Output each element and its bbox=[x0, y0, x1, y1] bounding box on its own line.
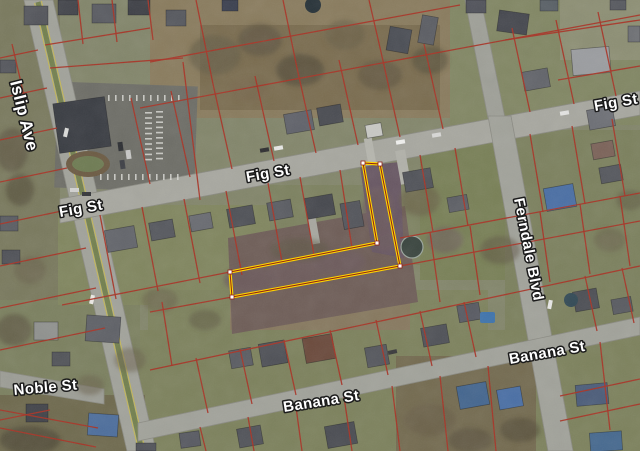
parcel-vertex-handle[interactable] bbox=[228, 270, 232, 274]
map-viewport[interactable]: Islip AveFig StFig StFig StFerndale Blvd… bbox=[0, 0, 640, 451]
aerial-parcel-map[interactable]: Islip AveFig StFig StFig StFerndale Blvd… bbox=[0, 0, 640, 451]
photo-grain bbox=[0, 0, 640, 451]
parcel-vertex-handle[interactable] bbox=[361, 161, 365, 165]
parcel-vertex-handle[interactable] bbox=[230, 295, 234, 299]
parcel-vertex-handle[interactable] bbox=[378, 162, 382, 166]
parcel-vertex-handle[interactable] bbox=[398, 264, 402, 268]
parcel-vertex-handle[interactable] bbox=[375, 241, 379, 245]
